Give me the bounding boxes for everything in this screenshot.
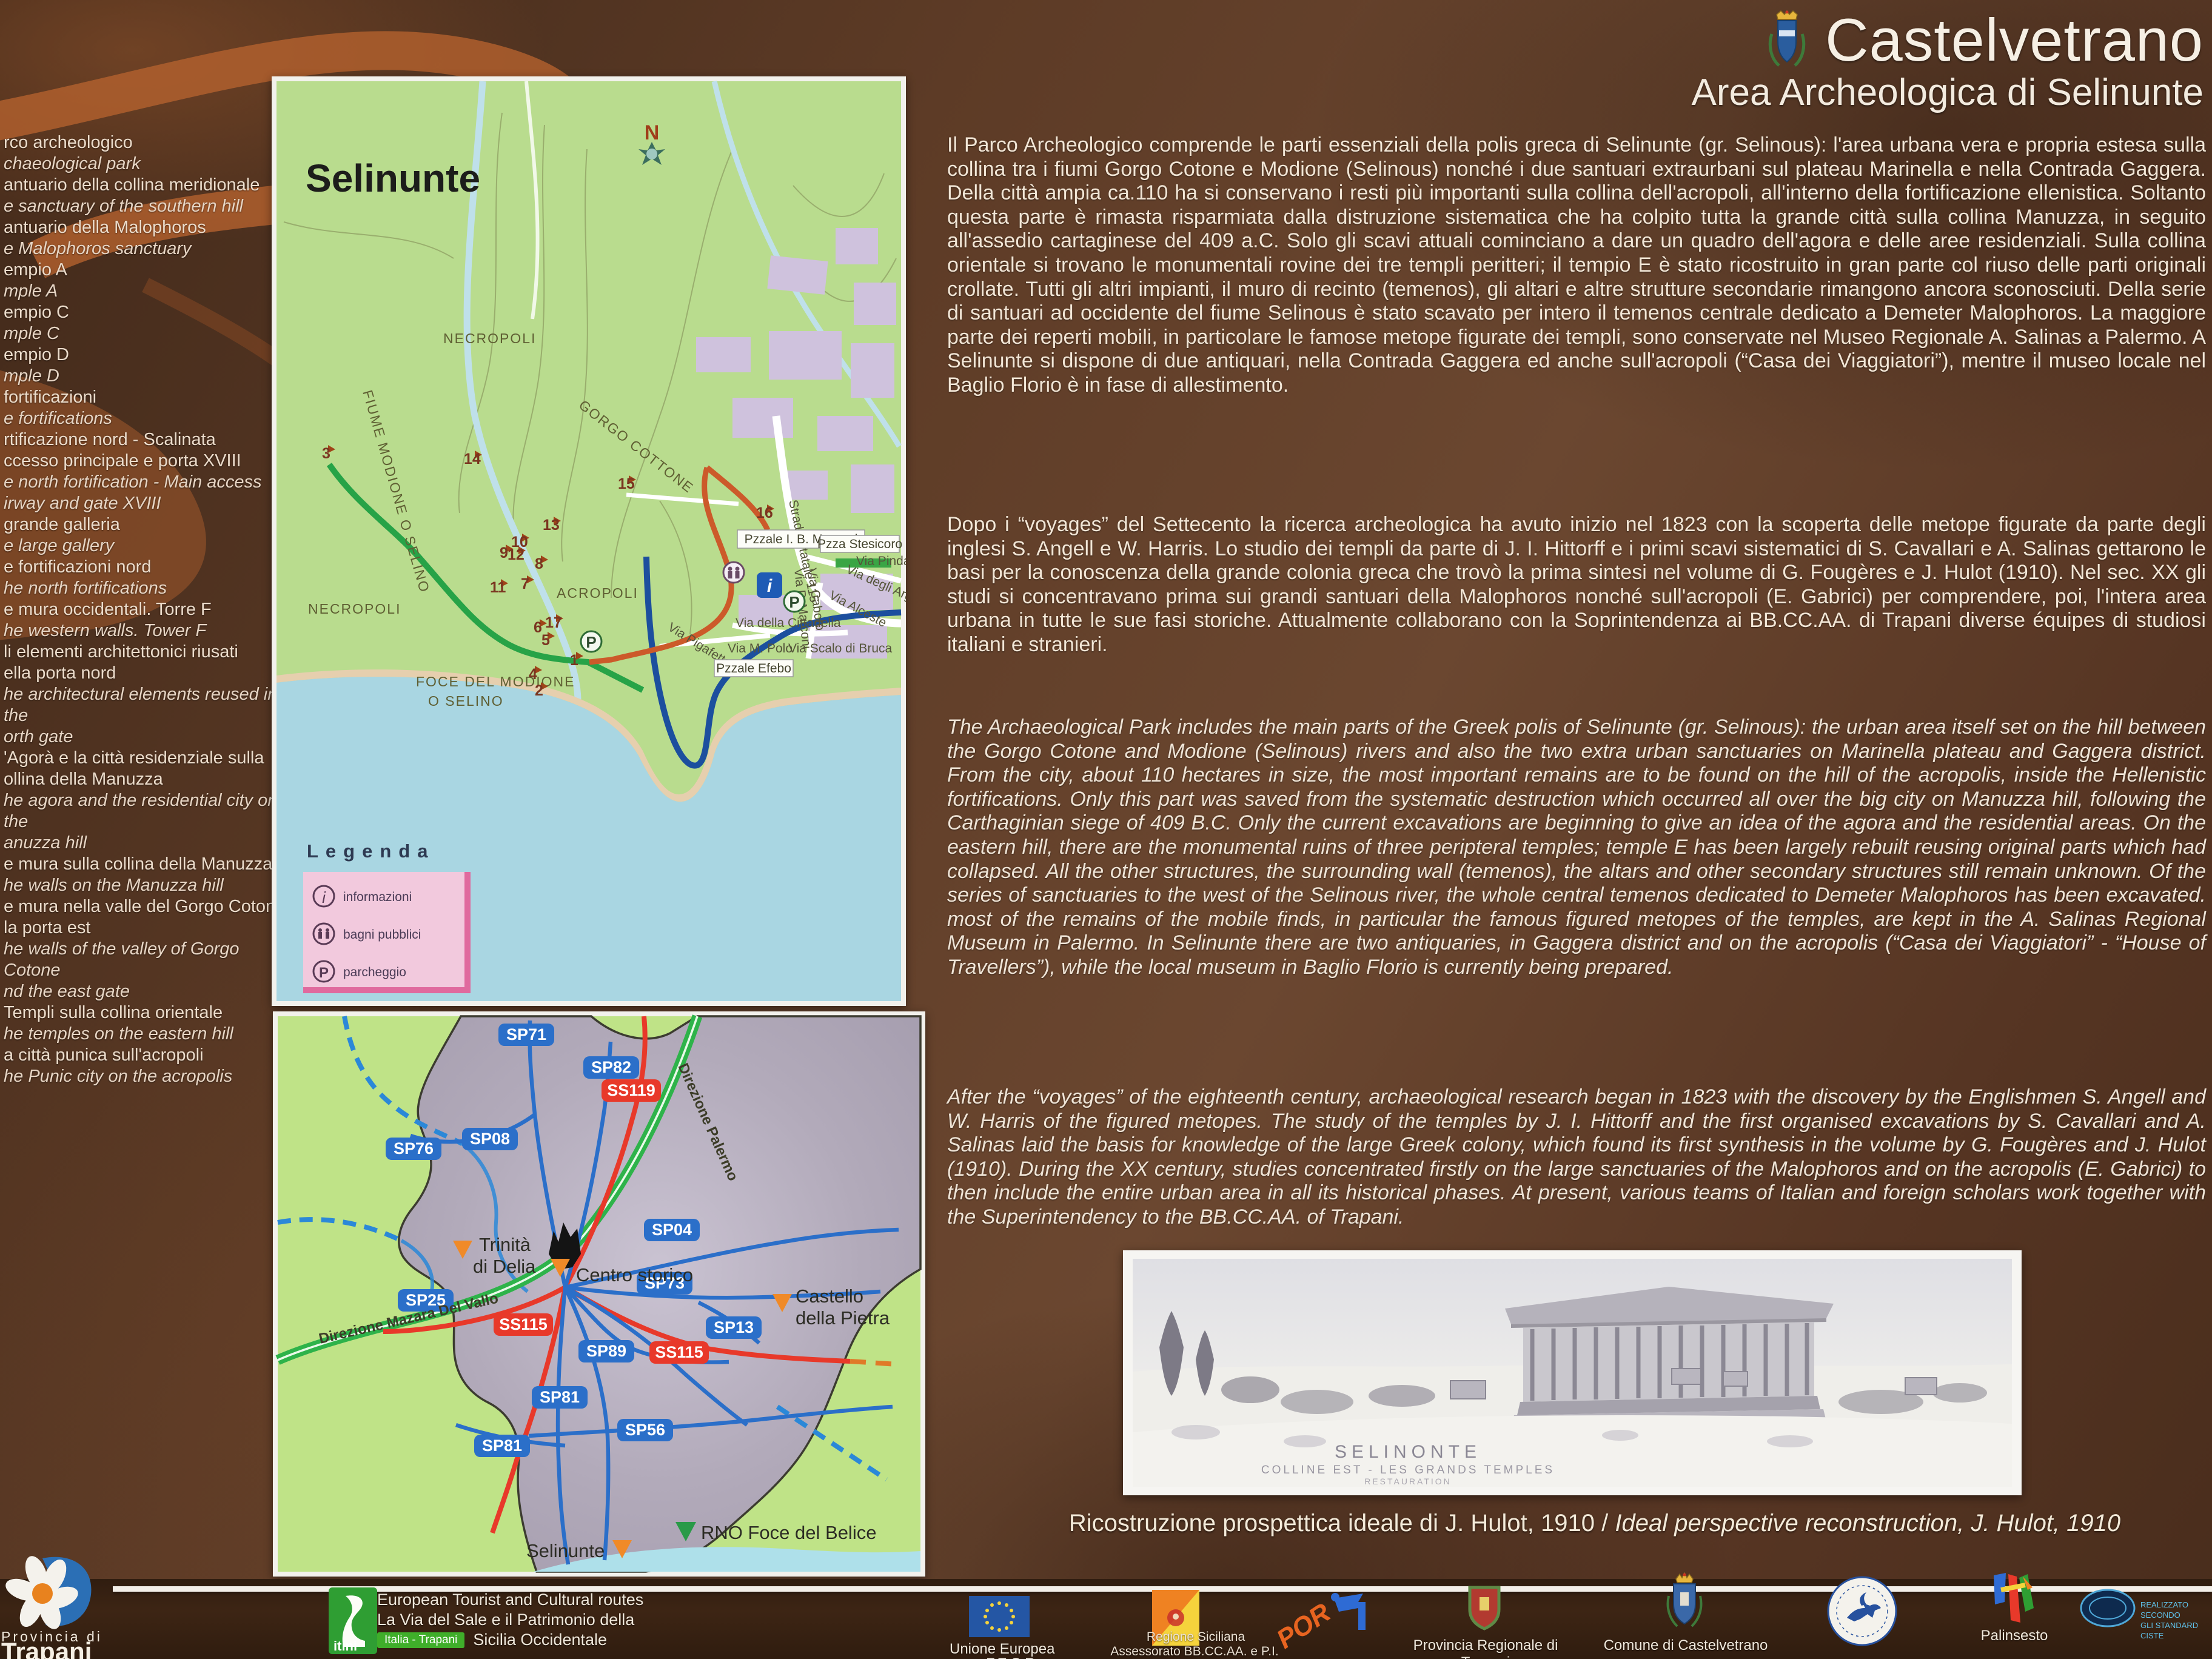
svg-text:N: N [645,121,660,144]
road-map-drawing: SP71 SP82 SS119 SP08 SP76 SP25 SS115 SP0… [273,1011,925,1577]
info-icon: i [757,572,782,598]
provincia-trapani-flower-icon [0,1552,97,1631]
reconstruction-photo: SELINONTE COLLINE EST - LES GRANDS TEMPL… [1123,1250,2022,1495]
wc-icon [723,562,744,583]
photo-inner-title: SELINONTE [1335,1442,1481,1462]
badge-sp89: SP89 [578,1340,634,1362]
list-item-english: e north fortification - Main access irwa… [4,472,289,514]
label-selinunte: Selinunte [526,1540,605,1561]
svg-text:SP71: SP71 [506,1025,546,1044]
list-item-italian: 'Agorà e la città residenziale sulla oll… [4,748,289,790]
photo-inner-subtitle-2: RESTAURATION [1364,1476,1452,1486]
list-item-italian: e mura occidentali. Torre F [4,599,289,620]
label-pzza-stesicoro: Pzza Stesicoro [817,535,902,552]
list-item-english: he western walls. Tower F [4,620,289,642]
list-item: grande galleria e large gallery [4,514,289,557]
list-item: antuario della collina meridionale e san… [4,175,289,217]
svg-text:SS115: SS115 [499,1315,548,1333]
svg-text:SS119: SS119 [607,1081,655,1099]
page-subtitle: Area Archeologica di Selinunte [1692,73,2204,113]
reconstruction-drawing: SELINONTE COLLINE EST - LES GRANDS TEMPL… [1123,1250,2022,1495]
list-item: rtificazione nord - Scalinata ccesso pri… [4,429,289,514]
parking-icon-east: P [784,591,805,612]
marker-9: 9 [500,545,508,561]
label-via-scalo-di-bruca: Via Scalo di Bruca [788,642,893,655]
list-item: rco archeologico chaeological park [4,132,289,175]
badge-sp71: SP71 [498,1024,554,1046]
footer-provincia-regionale: Provincia Regionale di Trapani [1395,1637,1577,1659]
list-item: 'Agorà e la città residenziale sulla oll… [4,748,289,854]
badge-sp04: SP04 [644,1219,700,1241]
itinerary-block: European Tourist and Cultural routes La … [377,1590,643,1650]
svg-text:SP82: SP82 [591,1058,631,1076]
svg-text:P: P [586,633,596,651]
svg-text:SP76: SP76 [394,1139,434,1158]
svg-text:SP13: SP13 [714,1318,754,1336]
provincia-regionale-crest-icon [1466,1584,1503,1631]
itinerary-line1: European Tourist and Cultural routes [377,1590,643,1610]
list-item-english: mple D [4,366,289,387]
badge-sp76: SP76 [386,1138,441,1160]
svg-text:SP56: SP56 [625,1421,665,1439]
palinsesto-logo-icon [1990,1572,2037,1624]
list-item-english: mple C [4,323,289,344]
footer-provincia-line2: Trapani [1,1637,92,1659]
list-item-italian: empio C [4,302,289,323]
list-item-italian: e mura nella valle del Gorgo Cotone la p… [4,896,289,939]
list-item: e fortificazioni nord he north fortifica… [4,557,289,599]
list-item-english: he Punic city on the acropolis [4,1066,289,1087]
list-item-italian: e fortificazioni nord [4,557,289,578]
list-item-italian: fortificazioni [4,387,289,408]
label-via-m-polo: Via M. Polo [728,642,793,655]
ciste-logo-icon [2079,1586,2137,1630]
svg-text:SP04: SP04 [652,1221,692,1239]
marker-14: 14 [464,451,481,468]
list-item-english: he agora and the residential city on the… [4,790,289,854]
list-item-italian: empio A [4,260,289,281]
svg-text:Pzza Stesicoro: Pzza Stesicoro [817,537,902,551]
label-acropoli: ACROPOLI [557,585,638,601]
label-rno: RNO Foce del Belice [701,1522,876,1543]
label-via-pindaro: Via Pindaro [856,554,906,568]
label-trinita: Trinitàdi Delia [473,1234,536,1277]
svg-text:POR: POR [1272,1597,1336,1654]
list-item-english: e large gallery [4,535,289,557]
footer-comune: Comune di Castelvetrano [1595,1637,1777,1654]
list-item-italian: grande galleria [4,514,289,535]
label-centro-storico: Centro storico [576,1264,693,1285]
legend-title: Legenda [307,840,435,862]
list-item-italian: antuario della collina meridionale [4,175,289,196]
castelvetrano-crest-icon [1765,10,1809,70]
footer-eu-line2: F.E.S.R. [986,1655,1039,1659]
soprintendenza-pegasus-seal-icon [1826,1575,1898,1647]
por-logo-icon: POR [1267,1587,1376,1654]
itinerary-line2: La Via del Sale e il Patrimonio della [377,1610,643,1630]
list-item: fortificazioni e fortifications [4,387,289,429]
temple [1505,1287,1834,1427]
label-foce-1: FOCE DEL MODIONE [416,674,575,689]
badge-sp13: SP13 [706,1316,762,1339]
marker-16: 16 [756,504,773,521]
svg-text:itini: itini [333,1638,357,1654]
site-map-title: Selinunte [306,156,480,200]
paragraph-english-2: After the “voyages” of the eighteenth ce… [947,1085,2206,1230]
list-item-english: e fortifications [4,408,289,429]
label-pzzale-efebo: Pzzale Efebo [714,660,793,677]
info-panel: rco archeologico chaeological park antua… [0,0,2212,1659]
label-necropoli-north: NECROPOLI [443,330,536,346]
list-item-italian: a città punica sull'acropoli [4,1045,289,1066]
parking-icon-acropolis: P [581,631,602,652]
comune-castelvetrano-crest-icon [1665,1572,1704,1632]
label-via-cittadella: Via della Cittadella [736,616,841,630]
marker-4: 4 [529,666,537,683]
photo-inner-subtitle: COLLINE EST - LES GRANDS TEMPLES [1261,1464,1555,1476]
list-item-english: he architectural elements reused in the … [4,684,289,748]
photo-caption-english: Ideal perspective reconstruction, J. Hul… [1615,1510,2120,1537]
legend-parking-icon: P [319,965,329,981]
footer-regione-line1: Regione Siciliana [1117,1630,1275,1644]
svg-text:SP81: SP81 [482,1436,522,1455]
legend-item-informazioni: informazioni [343,890,412,904]
list-item-english: he walls of the valley of Gorgo Cotone n… [4,939,289,1002]
badge-ss115-east: SS115 [649,1341,709,1364]
badge-sp81-b: SP81 [474,1435,530,1457]
list-item-english: he temples on the eastern hill [4,1024,289,1045]
list-item: e mura sulla collina della Manuzza he wa… [4,854,289,896]
list-item-english: e sanctuary of the southern hill [4,196,289,217]
list-item-english: mple A [4,281,289,302]
badge-ss119: SS119 [602,1079,661,1102]
badge-sp56: SP56 [617,1419,673,1441]
marker-13: 13 [543,517,560,534]
badge-ss115-west: SS115 [494,1313,553,1336]
list-item-italian: antuario della Malophoros [4,217,289,238]
sidebar-legend-list: rco archeologico chaeological park antua… [4,132,289,1087]
list-item-italian: e mura sulla collina della Manuzza [4,854,289,875]
svg-text:i: i [767,576,773,596]
list-item-italian: empio D [4,344,289,366]
eu-flag-icon [969,1596,1030,1637]
legend-item-parcheggio: parcheggio [343,965,406,979]
marker-12: 12 [508,546,525,563]
svg-text:SS115: SS115 [655,1343,703,1361]
marker-5: 5 [541,632,550,649]
list-item: empio A mple A [4,260,289,302]
italia-trapani-badge: Italia - Trapani [377,1632,464,1648]
list-item: e mura nella valle del Gorgo Cotone la p… [4,896,289,1002]
marker-8: 8 [535,555,543,572]
footer-ciste-line2: GLI STANDARD CISTE [2140,1620,2212,1641]
photo-caption-italian: Ricostruzione prospettica ideale di J. H… [1069,1510,1615,1537]
label-necropoli-south: NECROPOLI [308,601,401,617]
site-map: NECROPOLI NECROPOLI GORGO COTTONE FIUME … [272,76,906,1006]
paragraph-english-1: The Archaeological Park includes the mai… [947,716,2206,980]
badge-sp81-a: SP81 [532,1386,588,1409]
list-item-english: he walls on the Manuzza hill [4,875,289,896]
list-item: empio C mple C [4,302,289,344]
marker-7: 7 [521,575,529,592]
marker-3: 3 [322,445,330,462]
marker-15: 15 [618,475,635,492]
list-item-english: chaeological park [4,153,289,175]
list-item: empio D mple D [4,344,289,387]
footer-palinsesto: Palinsesto [1972,1627,2057,1644]
svg-text:SP81: SP81 [540,1388,580,1406]
list-item-italian: li elementi architettonici riusati ella … [4,642,289,684]
road-map: SP71 SP82 SS119 SP08 SP76 SP25 SS115 SP0… [273,1011,925,1577]
marker-11: 11 [490,579,506,596]
list-item: li elementi architettonici riusati ella … [4,642,289,748]
svg-text:SP89: SP89 [586,1342,626,1360]
list-item: a città punica sull'acropoli he Punic ci… [4,1045,289,1087]
marker-2: 2 [535,682,543,699]
badge-sp82: SP82 [583,1056,639,1079]
itinerary-line3: Sicilia Occidentale [473,1630,607,1650]
list-item-italian: Templi sulla collina orientale [4,1002,289,1024]
list-item-english: e Malophoros sanctuary [4,238,289,260]
marker-17: 17 [545,614,562,631]
page-title: Castelvetrano [1825,8,2204,72]
footer-ciste-line1: REALIZZATO SECONDO [2140,1600,2212,1620]
label-foce-2: O SELINO [428,693,504,709]
list-item: Templi sulla collina orientale he temple… [4,1002,289,1045]
paragraph-italian-2: Dopo i “voyages” del Settecento la ricer… [947,513,2206,657]
footer-ciste: REALIZZATO SECONDO GLI STANDARD CISTE [2140,1600,2212,1641]
badge-sp08: SP08 [462,1128,518,1150]
list-item-english: he north fortifications [4,578,289,599]
site-map-drawing: NECROPOLI NECROPOLI GORGO COTTONE FIUME … [272,76,906,1006]
marker-6: 6 [534,619,542,636]
list-item: antuario della Malophoros e Malophoros s… [4,217,289,260]
list-item-italian: rtificazione nord - Scalinata ccesso pri… [4,429,289,472]
svg-text:Pzzale Efebo: Pzzale Efebo [716,662,791,675]
legend-item-bagni: bagni pubblici [343,928,421,942]
itini-logo-icon: itini [329,1587,377,1654]
marker-1: 1 [570,652,578,669]
svg-text:SP08: SP08 [470,1130,510,1148]
header: Castelvetrano Area Archeologica di Selin… [1692,8,2204,113]
list-item-italian: rco archeologico [4,132,289,153]
paragraph-italian-1: Il Parco Archeologico comprende le parti… [947,133,2206,398]
svg-text:P: P [789,593,799,611]
photo-caption: Ricostruzione prospettica ideale di J. H… [1031,1510,2159,1537]
list-item: e mura occidentali. Torre F he western w… [4,599,289,642]
